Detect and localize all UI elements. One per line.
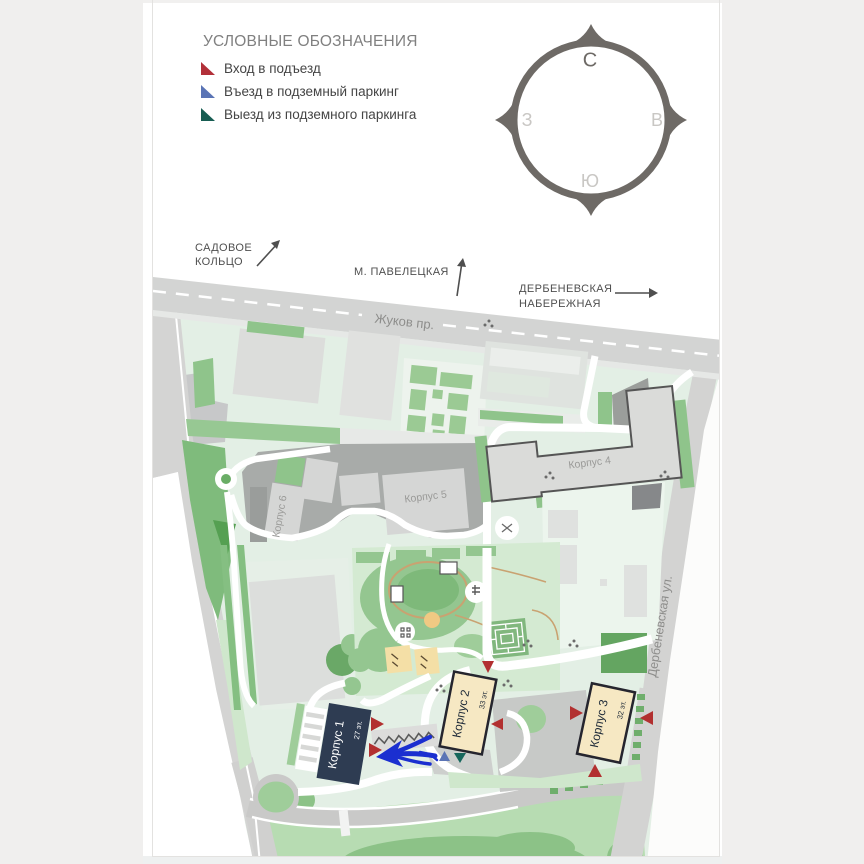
svg-text:С: С [583,49,597,71]
svg-text:В: В [651,110,663,130]
svg-text:Ю: Ю [581,171,599,191]
svg-text:З: З [522,110,533,130]
